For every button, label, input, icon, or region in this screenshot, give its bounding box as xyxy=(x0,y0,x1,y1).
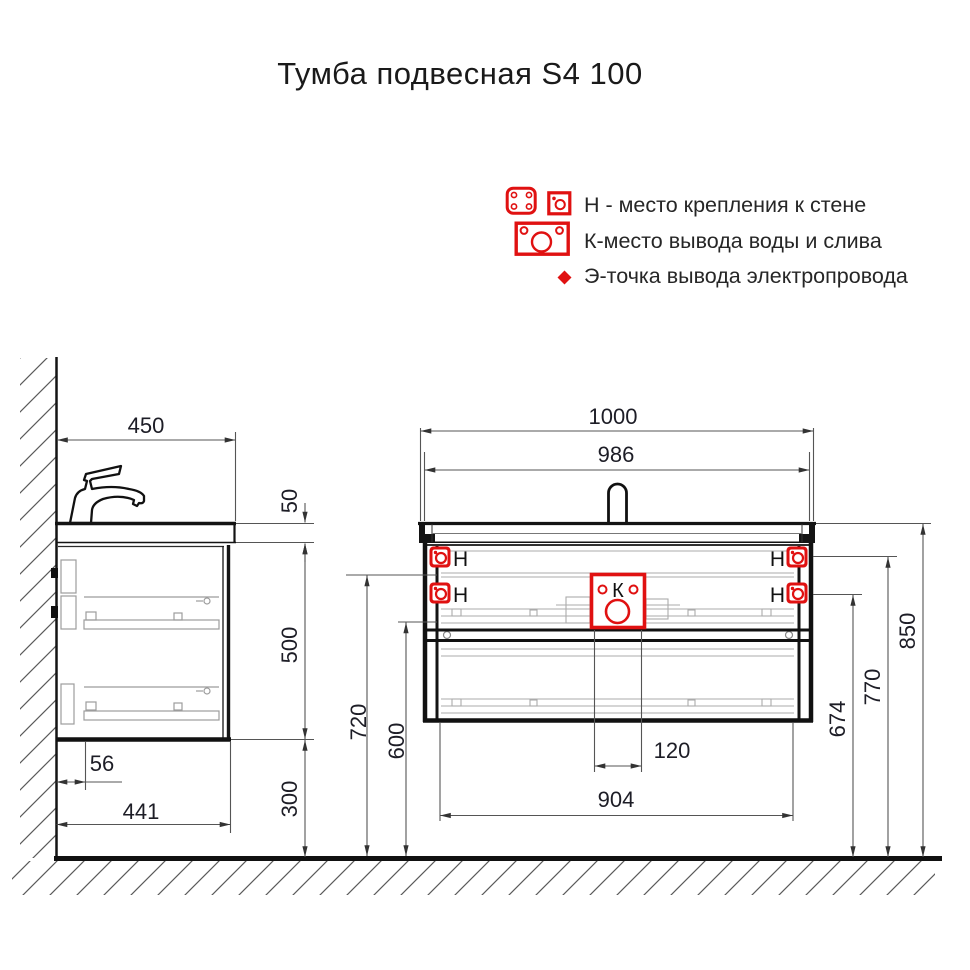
drawing-page: Тумба подвесная S4 100 Н - место креплен… xyxy=(0,0,970,970)
side-hardware xyxy=(61,560,219,724)
faucet-hole xyxy=(609,484,627,523)
mount-marker-top-left xyxy=(430,547,451,568)
dim-mount-rail-height: 720 xyxy=(346,704,371,741)
water-outlet-marker: К xyxy=(592,575,645,628)
dim-drain-zone-width: 120 xyxy=(654,738,691,763)
mount-marker-top-right xyxy=(787,547,808,568)
dim-basin-width: 986 xyxy=(598,442,635,467)
dim-mount-upper-height: 770 xyxy=(860,669,885,706)
dim-countertop-height: 850 xyxy=(895,613,920,650)
mount-label-bottom-right: Н xyxy=(770,584,785,607)
dim-total-width: 1000 xyxy=(589,404,638,429)
dim-floor-clearance: 300 xyxy=(277,781,302,818)
mount-label-top-right: Н xyxy=(770,548,785,571)
front-view: Н Н Н Н К xyxy=(418,484,816,722)
mount-label-bottom-left: Н xyxy=(453,584,468,607)
dim-cabinet-height: 500 xyxy=(277,627,302,664)
mount-label-top-left: Н xyxy=(453,548,468,571)
front-dim-lines xyxy=(346,428,931,857)
dim-drawer-top-height: 600 xyxy=(384,723,409,760)
faucet-outline xyxy=(70,466,144,523)
dim-mount-span: 904 xyxy=(598,787,635,812)
mount-marker-bottom-left xyxy=(430,583,451,604)
mount-marker-bottom-right xyxy=(787,583,808,604)
dim-back-offset: 56 xyxy=(90,751,114,776)
dim-depth-top: 450 xyxy=(128,413,165,438)
side-view xyxy=(51,466,236,740)
technical-drawing: Н Н Н Н К xyxy=(0,0,970,970)
dim-countertop-thickness: 50 xyxy=(277,489,302,513)
water-outlet-label: К xyxy=(612,580,624,602)
dim-mount-lower-height: 674 xyxy=(825,701,850,738)
floor-hatch xyxy=(12,859,942,896)
dim-depth-bottom: 441 xyxy=(123,799,160,824)
